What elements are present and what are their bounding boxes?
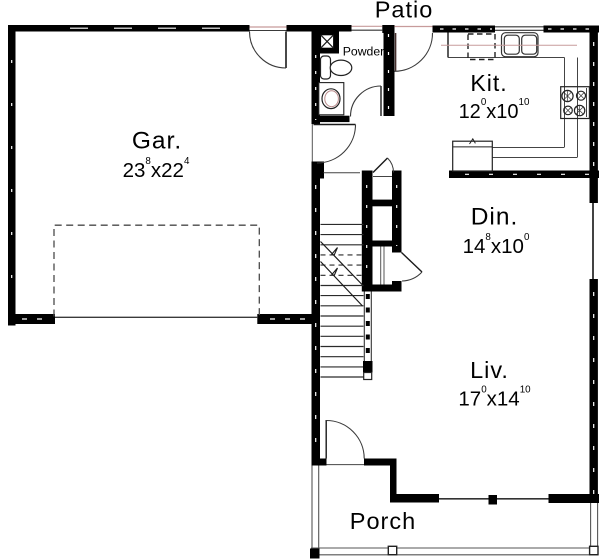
svg-text:Liv.: Liv.: [470, 357, 509, 383]
svg-text:Patio: Patio: [375, 0, 434, 23]
svg-text:148x100: 148x100: [463, 232, 530, 258]
svg-text:238x224: 238x224: [123, 156, 190, 182]
svg-text:Din.: Din.: [471, 204, 519, 231]
svg-text:Powder: Powder: [343, 46, 385, 58]
svg-text:Kit.: Kit.: [470, 70, 507, 96]
svg-text:Gar.: Gar.: [132, 128, 182, 155]
svg-text:Porch: Porch: [350, 508, 416, 534]
